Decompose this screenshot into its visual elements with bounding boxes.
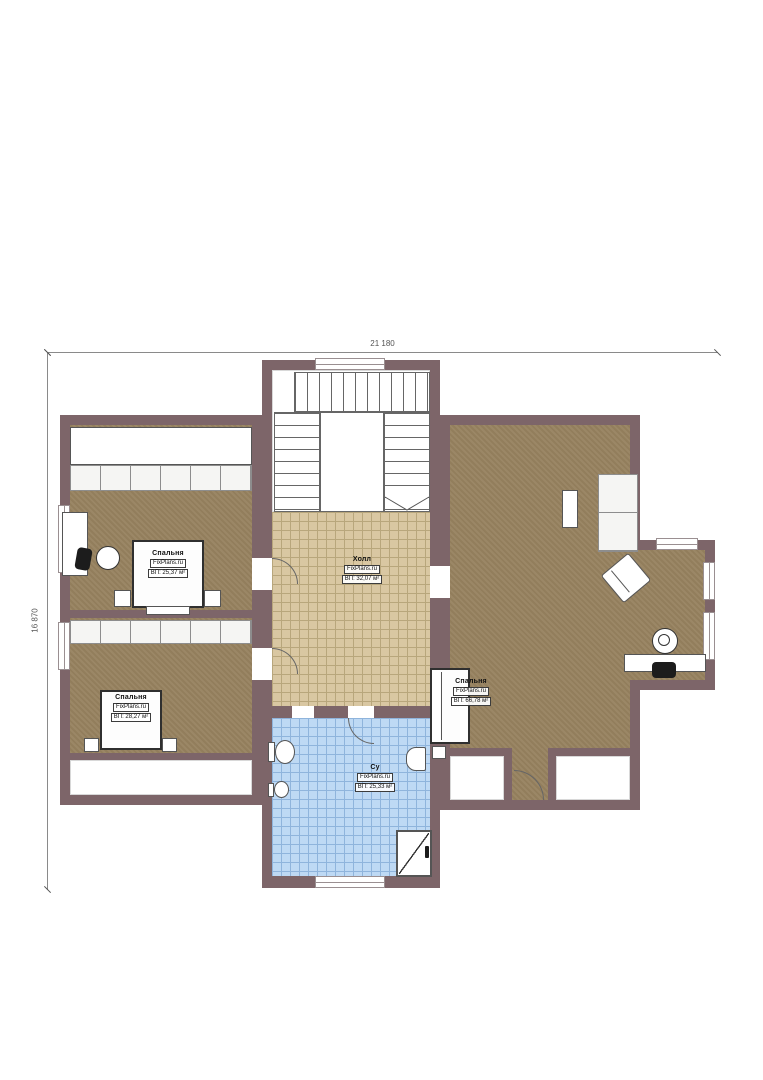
room-area: ВП: 66,78 м² (451, 697, 491, 706)
bench-bedroom-1 (146, 606, 190, 615)
room-label-bathroom: Су FixPlans.ru ВП: 25,33 м² (342, 764, 408, 792)
partition-corridor-right (548, 748, 556, 800)
wardrobe-bedroom-3 (598, 474, 638, 552)
stair-run-top (294, 372, 430, 412)
room-name: Спальня (134, 550, 202, 558)
wardrobe-bedroom-2 (70, 620, 252, 644)
partition-bottom-right (548, 748, 640, 756)
room-name: Спальня (101, 694, 161, 702)
dimension-line-top (47, 352, 718, 353)
nightstand-bedroom-3 (432, 746, 446, 759)
room-name: Спальня (438, 678, 504, 686)
brand-watermark: FixPlans.ru (150, 559, 186, 568)
room-label-bedroom-3: Спальня FixPlans.ru ВП: 66,78 м² (438, 678, 504, 706)
door-opening-bedroom-1 (252, 558, 272, 590)
plant-pot (652, 628, 678, 654)
floor-plan-canvas: Спальня FixPlans.ru ВП: 25,37 м² Спальня… (0, 0, 763, 1080)
window-extension-right-1 (703, 562, 715, 600)
toilet (275, 740, 295, 764)
wardrobe-bedroom-1 (70, 465, 252, 491)
balcony-floor (70, 760, 252, 795)
door-opening-bathroom-1 (292, 706, 314, 718)
door-opening-bathroom-2 (348, 706, 374, 718)
stair-void (320, 412, 384, 512)
stair-run-left (274, 412, 320, 512)
dimension-width-label: 21 180 (47, 339, 718, 348)
room-label-bedroom-2: Спальня FixPlans.ru ВП: 28,27 м² (101, 694, 161, 722)
window-bathroom (315, 876, 385, 888)
storage-room-left-floor (450, 756, 504, 800)
room-area: ВП: 25,33 м² (355, 783, 395, 792)
nightstand-right-bedroom-2 (162, 738, 177, 752)
partition-balcony (60, 753, 262, 760)
bidet (274, 781, 289, 798)
plant-icon (658, 634, 670, 646)
brand-watermark: FixPlans.ru (113, 703, 149, 712)
window-stair (315, 358, 385, 370)
shower-cabin (396, 830, 432, 877)
toilet-tank (268, 742, 275, 762)
storage-room-right-floor (556, 756, 630, 800)
hall-floor (272, 512, 430, 708)
door-opening-bedroom-2 (252, 648, 272, 680)
desk-chair-bedroom-3 (652, 662, 676, 678)
room-area: ВП: 28,27 м² (111, 713, 151, 722)
nightstand-right-bedroom-1 (204, 590, 221, 607)
nightstand-left-bedroom-2 (84, 738, 99, 752)
stair-direction-arrow (384, 496, 430, 512)
partition-corridor-left (504, 748, 512, 800)
window-extension-right-2 (703, 612, 715, 660)
window-extension-top (656, 538, 698, 550)
door-opening-bedroom-3 (430, 566, 450, 598)
window-bedroom-2 (58, 622, 70, 670)
brand-watermark: FixPlans.ru (453, 687, 489, 696)
brand-watermark: FixPlans.ru (357, 773, 393, 782)
room-area: ВП: 32,07 м² (342, 575, 382, 584)
room-name: Су (342, 764, 408, 772)
room-label-hall: Холл FixPlans.ru ВП: 32,07 м² (328, 556, 396, 584)
room-area: ВП: 25,37 м² (148, 569, 188, 578)
dimension-height-label: 16 870 (31, 608, 40, 632)
closet-strip-bedroom-1 (70, 427, 252, 465)
dimension-line-left (47, 352, 48, 890)
nightstand-left-bedroom-1 (114, 590, 131, 607)
shelf-bedroom-3 (562, 490, 578, 528)
room-label-bedroom-1: Спальня FixPlans.ru ВП: 25,37 м² (134, 550, 202, 578)
sink (406, 747, 426, 771)
brand-watermark: FixPlans.ru (344, 565, 380, 574)
room-name: Холл (328, 556, 396, 564)
stool-bedroom-1 (96, 546, 120, 570)
partition-bottom-left (440, 748, 512, 756)
shower-handle (425, 846, 429, 858)
